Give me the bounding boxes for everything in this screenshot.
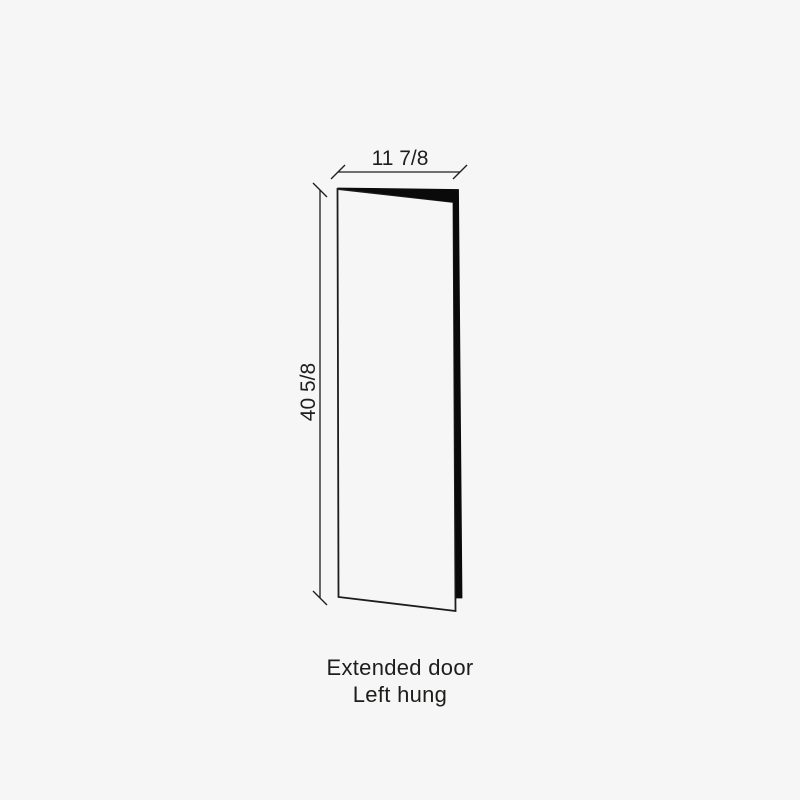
diagram-canvas: 11 7/8 40 5/8 Extended door Left hung <box>0 0 800 800</box>
caption-line-2: Left hung <box>0 681 800 708</box>
width-dimension-label: 11 7/8 <box>372 147 429 170</box>
diagram-caption: Extended door Left hung <box>0 654 800 708</box>
door-front-face <box>338 189 456 611</box>
caption-line-1: Extended door <box>0 654 800 681</box>
height-dimension-label: 40 5/8 <box>297 363 320 421</box>
